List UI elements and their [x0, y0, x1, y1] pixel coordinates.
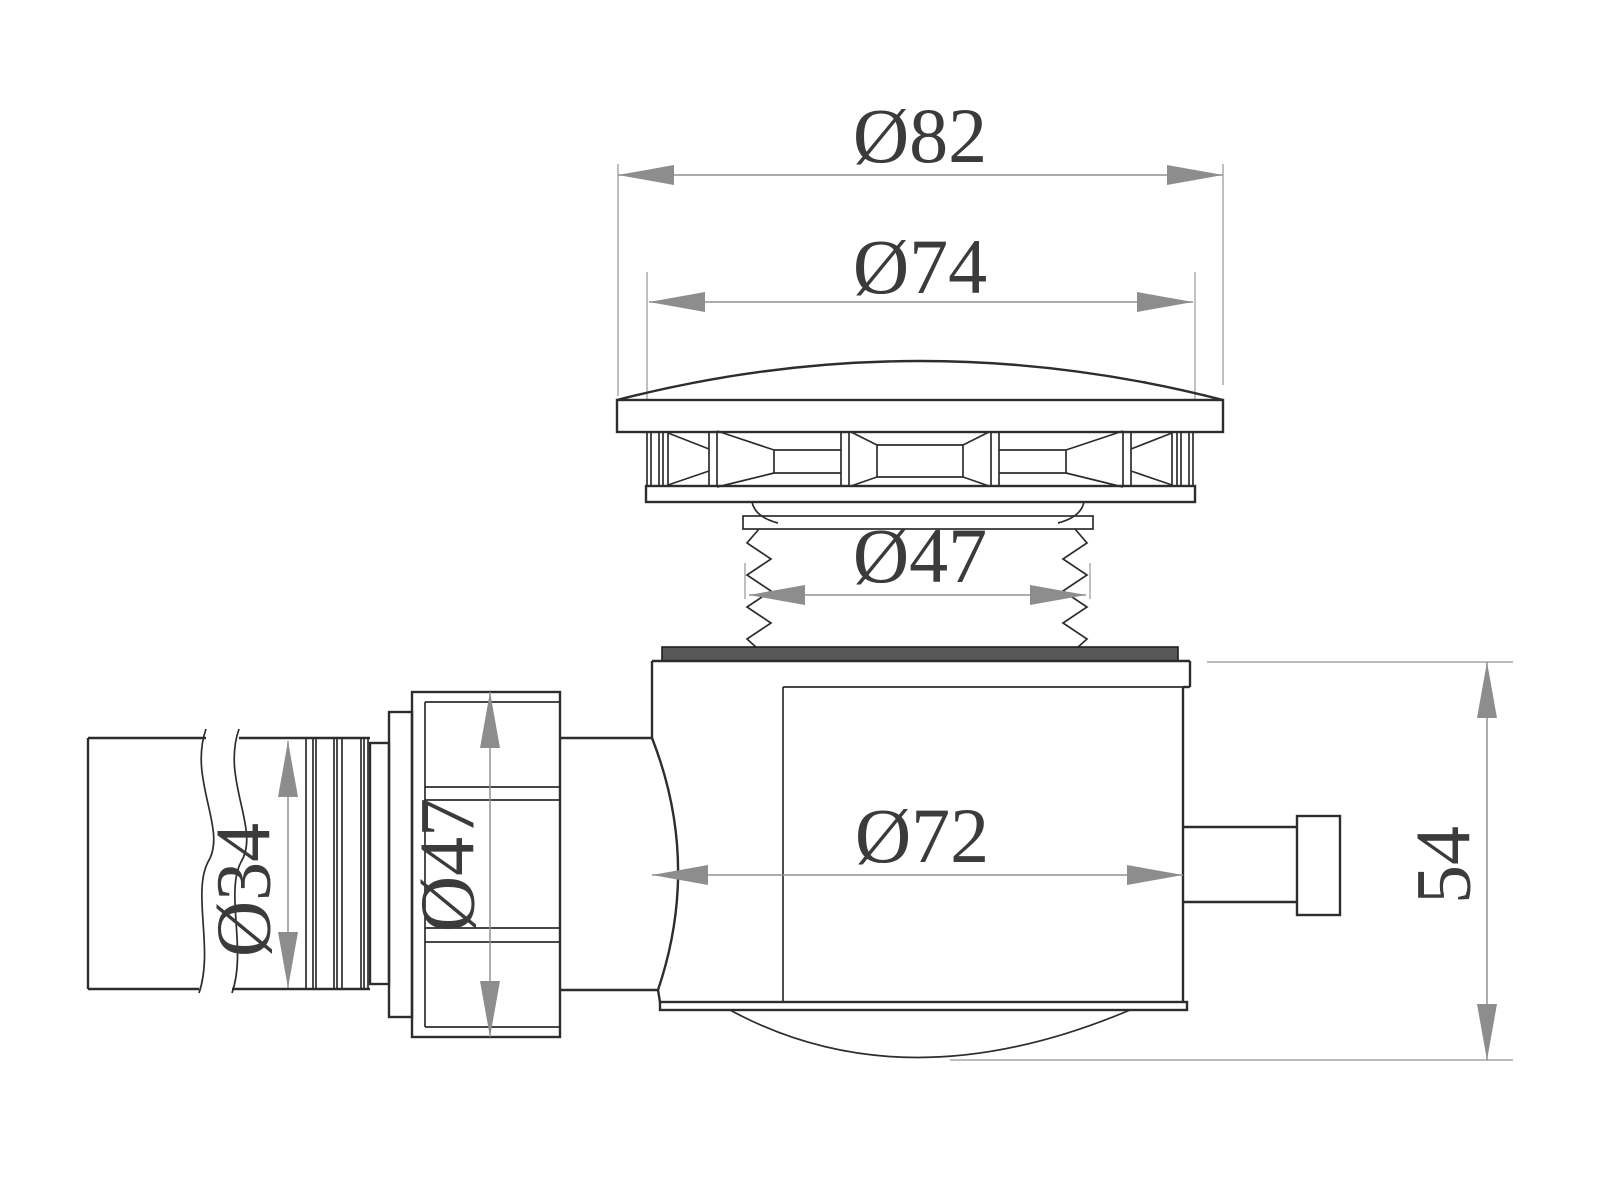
dim-label-inlet-pipe: Ø34: [200, 823, 287, 957]
dimension-cap-face: Ø74: [647, 223, 1195, 400]
cap-flange: [617, 400, 1223, 432]
body-bottom-plate: [660, 1002, 1187, 1010]
nut-step-small: [370, 743, 389, 984]
thread-left: [747, 529, 771, 648]
body-left-curve: [652, 738, 678, 1002]
technical-drawing-page: Ø82 Ø74: [0, 0, 1600, 1200]
rubber-gasket: [662, 647, 1178, 661]
arrow-down-icon: [1477, 1004, 1497, 1060]
arrow-left-icon: [618, 165, 674, 185]
dim-label-thread: Ø47: [853, 512, 987, 599]
dimension-thread: Ø47: [745, 512, 1090, 605]
body-bottom-dome: [730, 1010, 1130, 1058]
drain-trap-technical-drawing: Ø82 Ø74: [0, 0, 1600, 1200]
arrow-left-icon: [649, 292, 705, 312]
dim-label-cap-outer: Ø82: [853, 92, 987, 179]
arrow-up-icon: [1477, 662, 1497, 718]
drain-cap: [617, 361, 1223, 502]
arrow-left-icon: [652, 865, 708, 885]
dim-label-body: Ø72: [855, 792, 989, 879]
outlet-cap: [1297, 816, 1340, 915]
dimension-body: Ø72: [652, 792, 1183, 885]
cap-grille: [647, 431, 1193, 487]
dimension-inlet-pipe: Ø34: [200, 741, 299, 988]
trap-body: [652, 661, 1340, 1058]
dim-label-cap-face: Ø74: [853, 223, 987, 310]
arrow-down-icon: [480, 981, 500, 1037]
outlet-spigot: [1183, 816, 1340, 915]
arrow-right-icon: [1167, 165, 1223, 185]
inlet-assembly: [88, 692, 658, 1037]
dim-label-nut: Ø47: [404, 798, 491, 932]
dimension-nut: Ø47: [404, 692, 501, 1037]
arrow-right-icon: [1137, 292, 1193, 312]
arrow-right-icon: [1030, 585, 1086, 605]
arrow-left-icon: [749, 585, 805, 605]
compression-rings: [306, 738, 368, 989]
arrow-up-icon: [278, 741, 298, 797]
arrow-up-icon: [480, 692, 500, 748]
cap-dome-arc: [617, 361, 1223, 400]
thread-right: [1063, 529, 1087, 648]
dim-label-height: 54: [1400, 826, 1487, 904]
dimension-height: 54: [950, 662, 1513, 1060]
arrow-right-icon: [1127, 865, 1183, 885]
cap-base-ring: [646, 486, 1195, 502]
